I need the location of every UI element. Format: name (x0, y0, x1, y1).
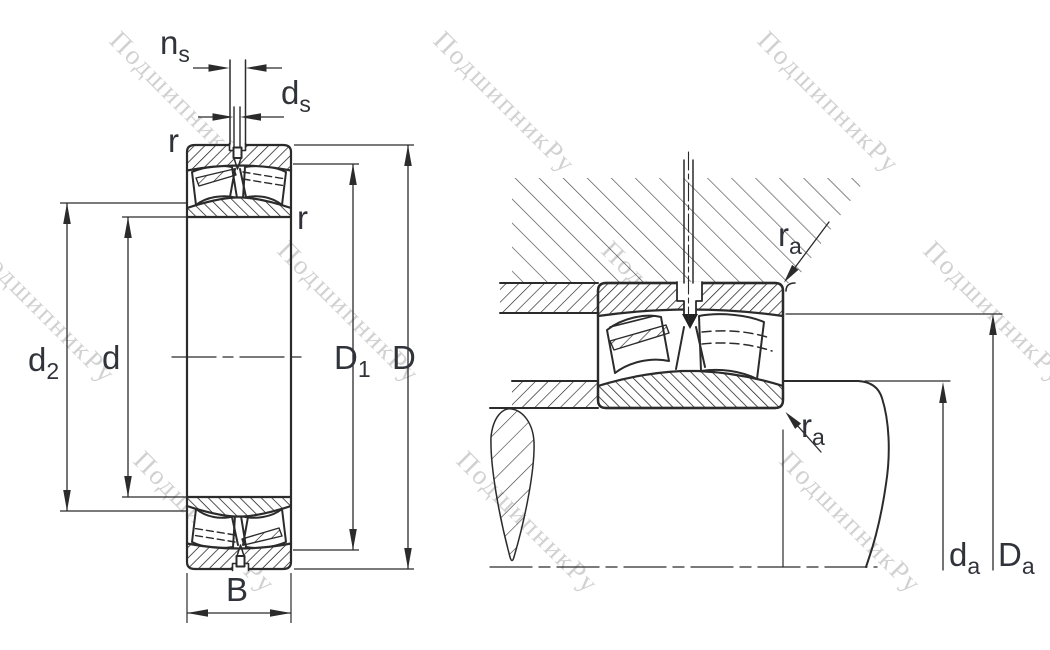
bearing-drawing-page: ПодшипникРу ПодшипникРу ПодшипникРу Подш… (0, 0, 1050, 650)
dim-ns: ns (160, 24, 282, 72)
counterbore (677, 282, 702, 301)
dim-label-ra-shaft: ra (801, 407, 825, 450)
bearing-technical-drawing: ПодшипникРу ПодшипникРу ПодшипникРу Подш… (0, 0, 1050, 650)
right-view-mounting-section: ra ra da Da (490, 152, 1035, 579)
oil-hole (234, 148, 242, 159)
arrowhead (209, 64, 267, 72)
watermark-text: ПодшипникРу (428, 25, 582, 179)
housing-fillet (786, 283, 795, 291)
watermark-text: ПодшипникРу (774, 445, 928, 599)
dim-label-d: d (102, 339, 120, 376)
dim-ds: ds (198, 74, 311, 121)
watermark-text: ПодшипникРу (918, 235, 1050, 389)
dim-label-Da: Da (998, 536, 1035, 579)
roller-right (699, 314, 764, 379)
dim-label-r-inner: r (297, 199, 308, 236)
watermark-text: ПодшипникРу (752, 25, 906, 179)
dim-label-B: B (226, 571, 248, 608)
housing-shoulder-hatch (500, 283, 598, 313)
arrowhead (939, 382, 947, 403)
dim-label-da: da (949, 536, 980, 579)
leader-ra-shaft: ra (786, 407, 826, 452)
dim-label-r-outer: r (168, 122, 179, 159)
hole-slot (684, 301, 696, 314)
dim-label-d2: d2 (28, 341, 59, 384)
shaft-shoulder-hatch (512, 381, 598, 408)
dim-label-D: D (392, 339, 416, 376)
mounted-bearing-section (598, 282, 783, 408)
dim-label-ns: ns (160, 24, 190, 67)
dim-label-ds: ds (281, 74, 311, 117)
bearing-section-upper-half (187, 143, 291, 217)
